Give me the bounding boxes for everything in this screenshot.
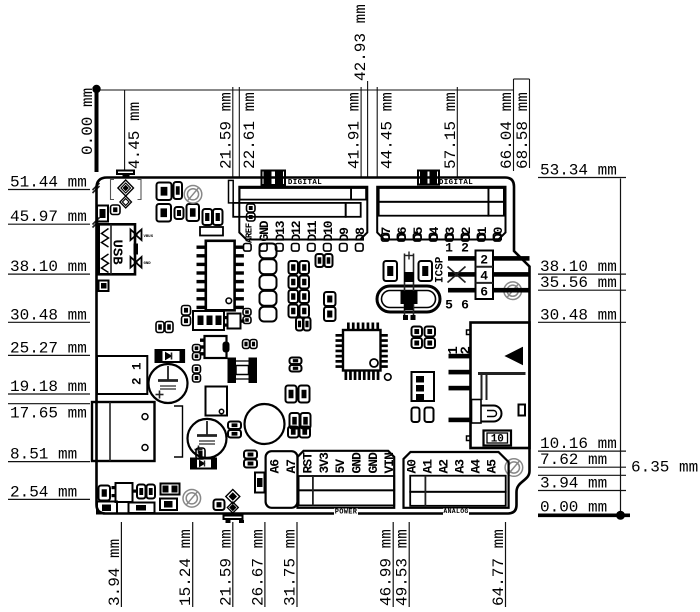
svg-text:A3: A3: [453, 459, 468, 474]
svg-text:21.59 mm: 21.59 mm: [217, 529, 235, 606]
svg-text:6: 6: [480, 285, 488, 300]
svg-text:41.91 mm: 41.91 mm: [346, 92, 364, 169]
svg-text:42.93 mm: 42.93 mm: [352, 4, 370, 81]
svg-text:3.94 mm: 3.94 mm: [106, 539, 124, 606]
svg-text:1: 1: [445, 241, 453, 256]
svg-text:D12: D12: [289, 220, 304, 241]
svg-text:GND: GND: [257, 220, 272, 241]
svg-text:30.48 mm: 30.48 mm: [540, 306, 617, 324]
svg-text:D10: D10: [321, 220, 336, 241]
svg-text:31.75 mm: 31.75 mm: [282, 529, 300, 606]
svg-text:A2: A2: [437, 459, 452, 474]
svg-text:5: 5: [445, 298, 453, 313]
svg-text:19.18 mm: 19.18 mm: [10, 378, 87, 396]
svg-text:5V: 5V: [333, 459, 348, 474]
svg-text:6.35 mm: 6.35 mm: [631, 458, 698, 476]
svg-text:GND: GND: [366, 452, 381, 474]
svg-text:POWER: POWER: [335, 509, 358, 517]
svg-text:2.54 mm: 2.54 mm: [10, 483, 77, 501]
svg-text:GND: GND: [144, 262, 152, 266]
svg-text:ICSP: ICSP: [435, 256, 447, 283]
svg-text:21.59 mm: 21.59 mm: [217, 92, 235, 169]
svg-text:0.00 mm: 0.00 mm: [79, 88, 97, 155]
svg-text:A0: A0: [405, 459, 420, 474]
svg-text:ANALOG: ANALOG: [443, 508, 468, 515]
svg-text:53.34 mm: 53.34 mm: [540, 162, 617, 180]
svg-text:10: 10: [491, 433, 504, 445]
svg-text:USB: USB: [109, 240, 125, 266]
svg-text:51.44 mm: 51.44 mm: [10, 174, 87, 192]
svg-text:35.56 mm: 35.56 mm: [540, 274, 617, 292]
svg-text:2: 2: [480, 253, 488, 268]
svg-text:57.15 mm: 57.15 mm: [442, 92, 460, 169]
svg-text:64.77 mm: 64.77 mm: [490, 529, 508, 606]
svg-text:A5: A5: [485, 459, 500, 474]
svg-text:38.10 mm: 38.10 mm: [10, 258, 87, 276]
svg-text:44.45 mm: 44.45 mm: [379, 92, 397, 169]
svg-text:VIN: VIN: [382, 453, 397, 474]
svg-text:7.62 mm: 7.62 mm: [540, 451, 607, 469]
svg-text:2: 2: [461, 241, 469, 256]
svg-text:GND: GND: [350, 452, 365, 474]
svg-text:15.24 mm: 15.24 mm: [177, 529, 195, 606]
svg-text:6: 6: [461, 298, 469, 313]
svg-text:A1: A1: [421, 459, 436, 474]
svg-text:26.67 mm: 26.67 mm: [249, 529, 267, 606]
svg-text:68.58 mm: 68.58 mm: [514, 92, 532, 169]
svg-text:D13: D13: [273, 220, 288, 241]
svg-text:3.94 mm: 3.94 mm: [540, 475, 607, 493]
svg-text:4: 4: [480, 269, 488, 284]
svg-text:RST: RST: [301, 452, 316, 474]
svg-text:3V3: 3V3: [317, 452, 332, 474]
svg-text:49.53 mm: 49.53 mm: [394, 529, 412, 606]
svg-text:D8: D8: [353, 227, 368, 242]
svg-text:D9: D9: [337, 227, 352, 242]
svg-text:D11: D11: [305, 220, 320, 241]
svg-text:AREF: AREF: [245, 223, 255, 243]
svg-text:17.65 mm: 17.65 mm: [10, 405, 87, 423]
svg-text:22.61 mm: 22.61 mm: [241, 92, 259, 169]
svg-text:2: 2: [459, 346, 475, 354]
svg-text:A4: A4: [469, 459, 484, 474]
svg-text:A6: A6: [268, 459, 283, 474]
svg-text:25.27 mm: 25.27 mm: [10, 339, 87, 357]
svg-text:30.48 mm: 30.48 mm: [10, 306, 87, 324]
svg-text:VBUS: VBUS: [144, 235, 154, 239]
svg-text:4.45 mm: 4.45 mm: [126, 102, 144, 169]
svg-text:45.97 mm: 45.97 mm: [10, 208, 87, 226]
svg-text:2 1: 2 1: [130, 362, 144, 385]
svg-text:8.51 mm: 8.51 mm: [10, 446, 77, 464]
